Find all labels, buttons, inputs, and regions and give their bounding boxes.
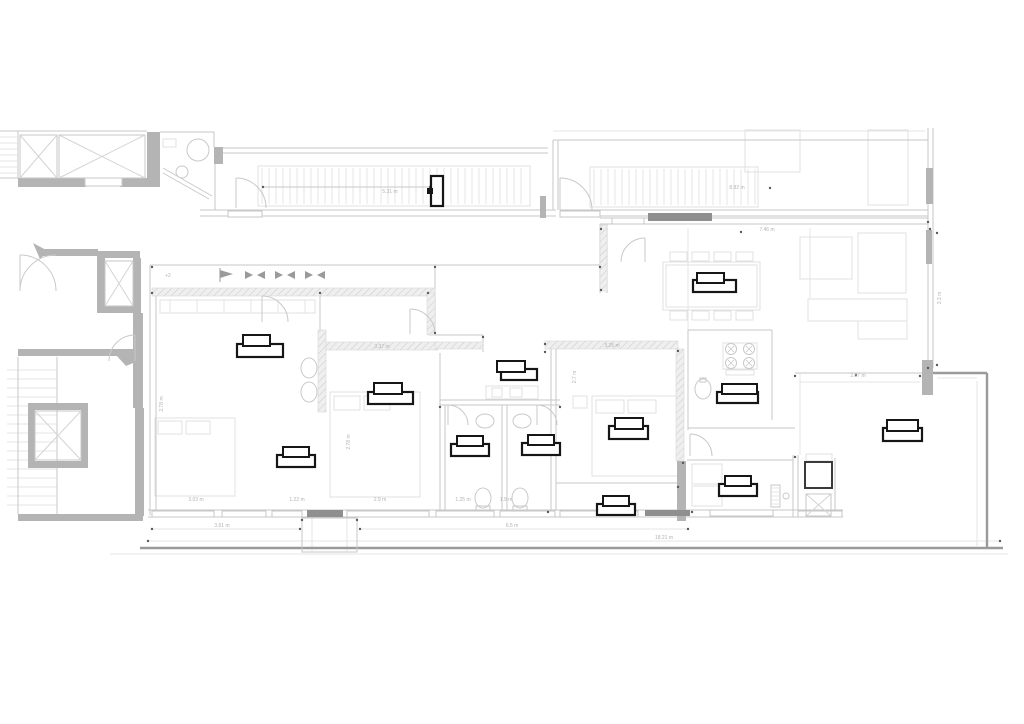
dimension-label: +2: [165, 273, 171, 279]
floor-plan-canvas[interactable]: 5.31 m8.82 m7.46 m3.37 m3.25 m3.61 m6.5 …: [0, 0, 1024, 724]
dimension-label: 1.9 m: [500, 497, 513, 503]
dimension-label: 8.82 m: [729, 185, 744, 191]
planter-and-shaft: [805, 462, 832, 516]
dimension-label: 18.21 m: [655, 535, 673, 541]
dimension-label: 2.87 m: [850, 373, 865, 379]
dimension-label: 3.61 m: [214, 523, 229, 529]
dimension-label: 2.7 m: [572, 371, 578, 384]
dimension-label: 2.9 m: [374, 497, 387, 503]
door-panel-marker[interactable]: [427, 176, 443, 206]
dimension-label: 6.5 m: [506, 523, 519, 529]
floor-plan-page: 5.31 m8.82 m7.46 m3.37 m3.25 m3.61 m6.5 …: [0, 0, 1024, 724]
shaft-square: [805, 462, 832, 488]
furniture-label-marker[interactable]: [609, 418, 648, 439]
furniture-label-marker[interactable]: [277, 447, 315, 467]
dimension-label: 3.03 m: [188, 497, 203, 503]
dimension-label: 3.37 m: [374, 344, 389, 350]
furniture-label-marker[interactable]: [497, 361, 537, 380]
terrace-edges: [140, 373, 1003, 548]
dimension-label: 7.46 m: [759, 227, 774, 233]
furniture-label-marker[interactable]: [883, 420, 922, 441]
furniture-label-marker[interactable]: [451, 436, 489, 456]
furniture-label-marker[interactable]: [719, 476, 757, 496]
furniture-label-marker[interactable]: [597, 496, 635, 515]
dimension-label: 2.78 m: [159, 396, 165, 411]
dimension-dots: [147, 186, 1001, 542]
dimension-label: 1.25 m: [455, 497, 470, 503]
dimension-label: 3.3 m: [937, 292, 943, 305]
furniture-label-marker[interactable]: [693, 273, 736, 292]
dimension-label: 5.31 m: [382, 189, 397, 195]
dimension-label: 1.22 m: [289, 497, 304, 503]
furniture-label-marker[interactable]: [237, 335, 283, 357]
furniture-label-marker[interactable]: [522, 435, 560, 455]
furniture-label-marker[interactable]: [717, 384, 758, 403]
entry-direction-symbols: [220, 268, 325, 282]
dimension-label: 3.25 m: [604, 343, 619, 349]
furniture-label-marker[interactable]: [368, 383, 413, 404]
dimension-label: 2.78 m: [346, 434, 352, 449]
